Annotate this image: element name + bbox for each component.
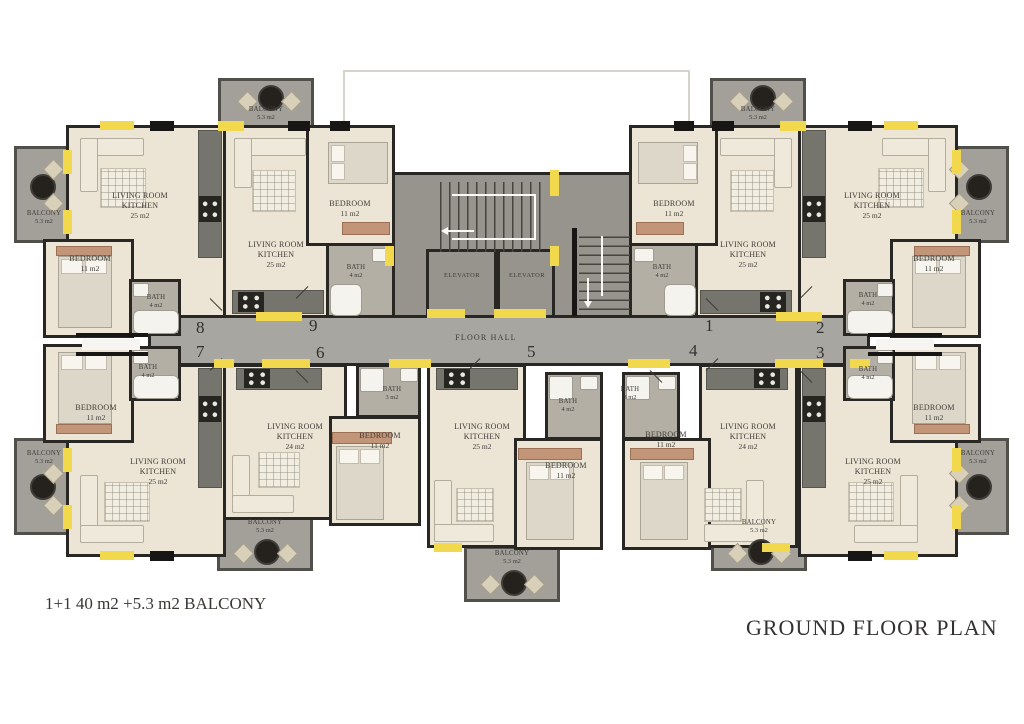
label-bedroom-2: BEDROOM11 m2 — [899, 254, 969, 274]
room-name: BEDROOM — [899, 254, 969, 264]
room-area: 11 m2 — [345, 441, 415, 451]
pillow — [360, 449, 380, 464]
room-area: 5.3 m2 — [728, 114, 788, 123]
stove-icon — [244, 369, 270, 388]
room-area: 11 m2 — [899, 264, 969, 274]
wall-block — [848, 551, 872, 561]
label-bath-7: BATH4 m2 — [126, 364, 170, 381]
label-living-7: LIVING ROOM KITCHEN25 m2 — [126, 457, 190, 487]
room-name: BALCONY — [235, 519, 295, 527]
passage-wall — [868, 333, 942, 337]
passage — [876, 339, 934, 350]
dresser — [342, 222, 390, 235]
dresser — [518, 448, 582, 460]
wall-block — [330, 121, 350, 131]
room-name: LIVING ROOM KITCHEN — [244, 240, 308, 260]
stove-icon — [803, 396, 825, 422]
elevator-label: ELEVATOR — [499, 272, 555, 280]
kitchen-counter — [802, 130, 826, 258]
room-area: 25 m2 — [126, 477, 190, 487]
room-name: LIVING ROOM KITCHEN — [263, 422, 327, 442]
sink — [580, 376, 598, 390]
room-area: 25 m2 — [841, 477, 905, 487]
pillow — [683, 145, 697, 162]
sofa — [928, 138, 946, 192]
bathtub — [847, 310, 893, 334]
room-name: BALCONY — [236, 106, 296, 114]
sofa — [774, 138, 792, 188]
label-bedroom-3: BEDROOM11 m2 — [899, 403, 969, 423]
rug — [252, 170, 296, 212]
stove-icon — [444, 369, 470, 388]
rug — [258, 452, 300, 488]
unit-number-2: 2 — [816, 318, 825, 338]
room-name: BALCONY — [948, 450, 1008, 458]
label-bedroom-4: BEDROOM11 m2 — [631, 430, 701, 450]
label-balcony-4: BALCONY5.3 m2 — [729, 519, 789, 536]
label-balcony-2: BALCONY5.3 m2 — [948, 210, 1008, 227]
shower — [549, 376, 573, 400]
bathtub — [133, 310, 179, 334]
label-bath-8: BATH4 m2 — [134, 294, 178, 311]
window-marker — [214, 359, 234, 368]
label-living-6: LIVING ROOM KITCHEN24 m2 — [263, 422, 327, 452]
pillow — [331, 163, 345, 180]
room-name: BATH — [134, 294, 178, 302]
window-marker — [100, 121, 134, 130]
pillow — [643, 465, 663, 480]
stair-railing — [452, 194, 536, 240]
elevator-2-room — [497, 249, 555, 318]
room-area: 11 m2 — [631, 440, 701, 450]
room-area: 4 m2 — [134, 302, 178, 311]
passage — [82, 339, 140, 350]
room-name: LIVING ROOM KITCHEN — [840, 191, 904, 211]
pillow — [664, 465, 684, 480]
stove-icon — [199, 196, 221, 222]
room-area: 11 m2 — [315, 209, 385, 219]
label-balcony-7: BALCONY5.3 m2 — [14, 450, 74, 467]
passage-wall — [76, 333, 148, 337]
label-elevator-1: ELEVATOR — [430, 272, 494, 280]
passage-wall — [868, 352, 942, 356]
room-area: 5.3 m2 — [236, 114, 296, 123]
label-living-3: LIVING ROOM KITCHEN25 m2 — [841, 457, 905, 487]
hall-label: FLOOR HALL — [436, 333, 536, 343]
floor-plan: LIVING ROOM KITCHEN25 m2 LIVING ROOM KIT… — [0, 0, 1024, 724]
rug — [704, 488, 742, 522]
label-bedroom-6: BEDROOM11 m2 — [345, 431, 415, 451]
room-area: 24 m2 — [263, 442, 327, 452]
room-area: 25 m2 — [840, 211, 904, 221]
stair-arrow-icon — [441, 227, 448, 235]
room-area: 5.3 m2 — [948, 218, 1008, 227]
window-marker — [385, 246, 394, 266]
room-area: 4 m2 — [640, 272, 684, 281]
room-name: LIVING ROOM KITCHEN — [108, 191, 172, 211]
label-living-2: LIVING ROOM KITCHEN25 m2 — [840, 191, 904, 221]
unit-number-3: 3 — [816, 343, 825, 363]
sink — [634, 248, 654, 262]
wall-block — [674, 121, 694, 131]
label-bath-5: BATH4 m2 — [546, 398, 590, 415]
pillow — [85, 355, 107, 370]
room-area: 5.3 m2 — [729, 527, 789, 536]
room-name: LIVING ROOM KITCHEN — [841, 457, 905, 477]
dresser — [914, 424, 970, 434]
unit-number-9: 9 — [309, 316, 318, 336]
label-bath-9: BATH4 m2 — [334, 264, 378, 281]
room-area: 3 m2 — [370, 394, 414, 403]
window-marker — [100, 551, 134, 560]
sofa — [434, 524, 494, 542]
window-marker — [427, 309, 465, 318]
label-living-5: LIVING ROOM KITCHEN25 m2 — [450, 422, 514, 452]
room-area: 5.3 m2 — [235, 527, 295, 536]
wall-block — [848, 121, 872, 131]
room-name: BATH — [608, 386, 652, 394]
sink — [658, 376, 676, 390]
window-marker — [762, 543, 790, 552]
room-name: BALCONY — [14, 210, 74, 218]
window-marker — [952, 505, 961, 529]
room-name: BEDROOM — [899, 403, 969, 413]
dresser — [56, 424, 112, 434]
room-name: BATH — [846, 292, 890, 300]
label-living-9: LIVING ROOM KITCHEN25 m2 — [244, 240, 308, 270]
kitchen-counter — [802, 368, 826, 488]
dresser — [636, 222, 684, 235]
label-bath-3: BATH4 m2 — [846, 366, 890, 383]
stove-icon — [803, 196, 825, 222]
label-elevator-2: ELEVATOR — [499, 272, 555, 280]
label-living-8: LIVING ROOM KITCHEN25 m2 — [108, 191, 172, 221]
unit-type-caption: 1+1 40 m2 +5.3 m2 BALCONY — [45, 594, 266, 614]
window-marker — [434, 543, 462, 552]
pillow — [915, 355, 937, 370]
room-name: BEDROOM — [61, 403, 131, 413]
room-name: BALCONY — [948, 210, 1008, 218]
window-marker — [256, 312, 302, 321]
room-name: BATH — [370, 386, 414, 394]
sofa — [232, 495, 294, 513]
core-wall — [572, 228, 577, 316]
label-bath-2: BATH4 m2 — [846, 292, 890, 309]
room-area: 11 m2 — [639, 209, 709, 219]
label-living-4: LIVING ROOM KITCHEN24 m2 — [716, 422, 780, 452]
room-area: 25 m2 — [244, 260, 308, 270]
room-area: 4 m2 — [334, 272, 378, 281]
balcony-table-icon — [501, 570, 527, 596]
kitchen-counter — [198, 368, 222, 488]
room-name: LIVING ROOM KITCHEN — [126, 457, 190, 477]
room-area: 5.3 m2 — [948, 458, 1008, 467]
window-marker — [550, 246, 559, 266]
unit-number-7: 7 — [196, 342, 205, 362]
pillow — [331, 145, 345, 162]
stove-icon — [238, 292, 264, 312]
balcony-table-icon — [966, 474, 992, 500]
room-name: BALCONY — [728, 106, 788, 114]
label-balcony-8: BALCONY5.3 m2 — [14, 210, 74, 227]
label-bedroom-5: BEDROOM11 m2 — [531, 461, 601, 481]
sink — [400, 368, 418, 382]
label-balcony-1: BALCONY5.3 m2 — [728, 106, 788, 123]
room-area: 4 m2 — [126, 372, 170, 381]
room-area: 11 m2 — [55, 264, 125, 274]
window-marker — [262, 359, 310, 368]
window-marker — [884, 551, 918, 560]
label-bath-4: BATH3 m2 — [608, 386, 652, 403]
room-area: 11 m2 — [531, 471, 601, 481]
rug — [848, 482, 894, 522]
room-area: 5.3 m2 — [482, 558, 542, 567]
room-area: 24 m2 — [716, 442, 780, 452]
room-name: BATH — [640, 264, 684, 272]
elevator-1-room — [426, 249, 497, 318]
kitchen-counter — [198, 130, 222, 258]
room-area: 25 m2 — [716, 260, 780, 270]
pillow — [61, 355, 83, 370]
room-name: BEDROOM — [531, 461, 601, 471]
label-balcony-3: BALCONY5.3 m2 — [948, 450, 1008, 467]
room-name: BATH — [126, 364, 170, 372]
balcony-table-icon — [254, 539, 280, 565]
stair-arrow-tail — [587, 278, 589, 302]
sofa — [854, 525, 918, 543]
room-area: 11 m2 — [899, 413, 969, 423]
room-name: BATH — [846, 366, 890, 374]
rug — [104, 482, 150, 522]
window-marker — [494, 309, 546, 318]
room-area: 4 m2 — [546, 406, 590, 415]
window-marker — [63, 505, 72, 529]
stair-railing — [601, 236, 603, 296]
window-marker — [628, 359, 670, 368]
label-bedroom-1: BEDROOM11 m2 — [639, 199, 709, 219]
rug — [456, 488, 494, 522]
room-name: BEDROOM — [639, 199, 709, 209]
label-bedroom-8: BEDROOM11 m2 — [55, 254, 125, 274]
room-area: 4 m2 — [846, 300, 890, 309]
room-area: 3 m2 — [608, 394, 652, 403]
unit-number-4: 4 — [689, 341, 698, 361]
room-name: BATH — [546, 398, 590, 406]
room-area: 11 m2 — [61, 413, 131, 423]
room-name: BATH — [334, 264, 378, 272]
window-marker — [884, 121, 918, 130]
room-name: BEDROOM — [631, 430, 701, 440]
label-bath-6: BATH3 m2 — [370, 386, 414, 403]
unit-number-8: 8 — [196, 318, 205, 338]
pillow — [339, 449, 359, 464]
room-area: 5.3 m2 — [14, 218, 74, 227]
pillow — [683, 163, 697, 180]
unit-number-1: 1 — [705, 316, 714, 336]
bathtub — [330, 284, 362, 316]
window-marker — [550, 170, 559, 196]
passage-wall — [76, 352, 148, 356]
room-area: 25 m2 — [450, 442, 514, 452]
sofa — [234, 138, 252, 188]
stove-icon — [760, 292, 786, 312]
elevator-label: ELEVATOR — [430, 272, 494, 280]
wall-block — [150, 121, 174, 131]
page-title: GROUND FLOOR PLAN — [746, 615, 998, 641]
label-balcony-5: BALCONY5.3 m2 — [482, 550, 542, 567]
label-balcony-6: BALCONY5.3 m2 — [235, 519, 295, 536]
room-area: 4 m2 — [846, 374, 890, 383]
window-marker — [63, 150, 72, 174]
window-marker — [389, 359, 431, 368]
room-name: LIVING ROOM KITCHEN — [450, 422, 514, 442]
rug — [730, 170, 774, 212]
label-bath-1: BATH4 m2 — [640, 264, 684, 281]
room-name: BEDROOM — [315, 199, 385, 209]
balcony-table-icon — [966, 174, 992, 200]
room-area: 5.3 m2 — [14, 458, 74, 467]
stove-icon — [199, 396, 221, 422]
stair-arrow-icon — [584, 301, 592, 308]
room-name: BEDROOM — [345, 431, 415, 441]
room-name: BEDROOM — [55, 254, 125, 264]
label-living-1: LIVING ROOM KITCHEN25 m2 — [716, 240, 780, 270]
sofa — [80, 138, 98, 192]
room-name: BALCONY — [482, 550, 542, 558]
label-bedroom-9: BEDROOM11 m2 — [315, 199, 385, 219]
room-area: 25 m2 — [108, 211, 172, 221]
label-bedroom-7: BEDROOM11 m2 — [61, 403, 131, 423]
window-marker — [952, 150, 961, 174]
room-name: LIVING ROOM KITCHEN — [716, 422, 780, 442]
room-name: LIVING ROOM KITCHEN — [716, 240, 780, 260]
pillow — [939, 355, 961, 370]
wall-block — [150, 551, 174, 561]
label-balcony-9: BALCONY5.3 m2 — [236, 106, 296, 123]
unit-number-5: 5 — [527, 342, 536, 362]
bathtub — [664, 284, 696, 316]
unit-number-6: 6 — [316, 343, 325, 363]
sofa — [80, 525, 144, 543]
stair-arrow-tail — [448, 230, 474, 232]
label-floor-hall: FLOOR HALL — [436, 333, 536, 343]
room-name: BALCONY — [14, 450, 74, 458]
room-name: BALCONY — [729, 519, 789, 527]
stove-icon — [754, 369, 780, 388]
